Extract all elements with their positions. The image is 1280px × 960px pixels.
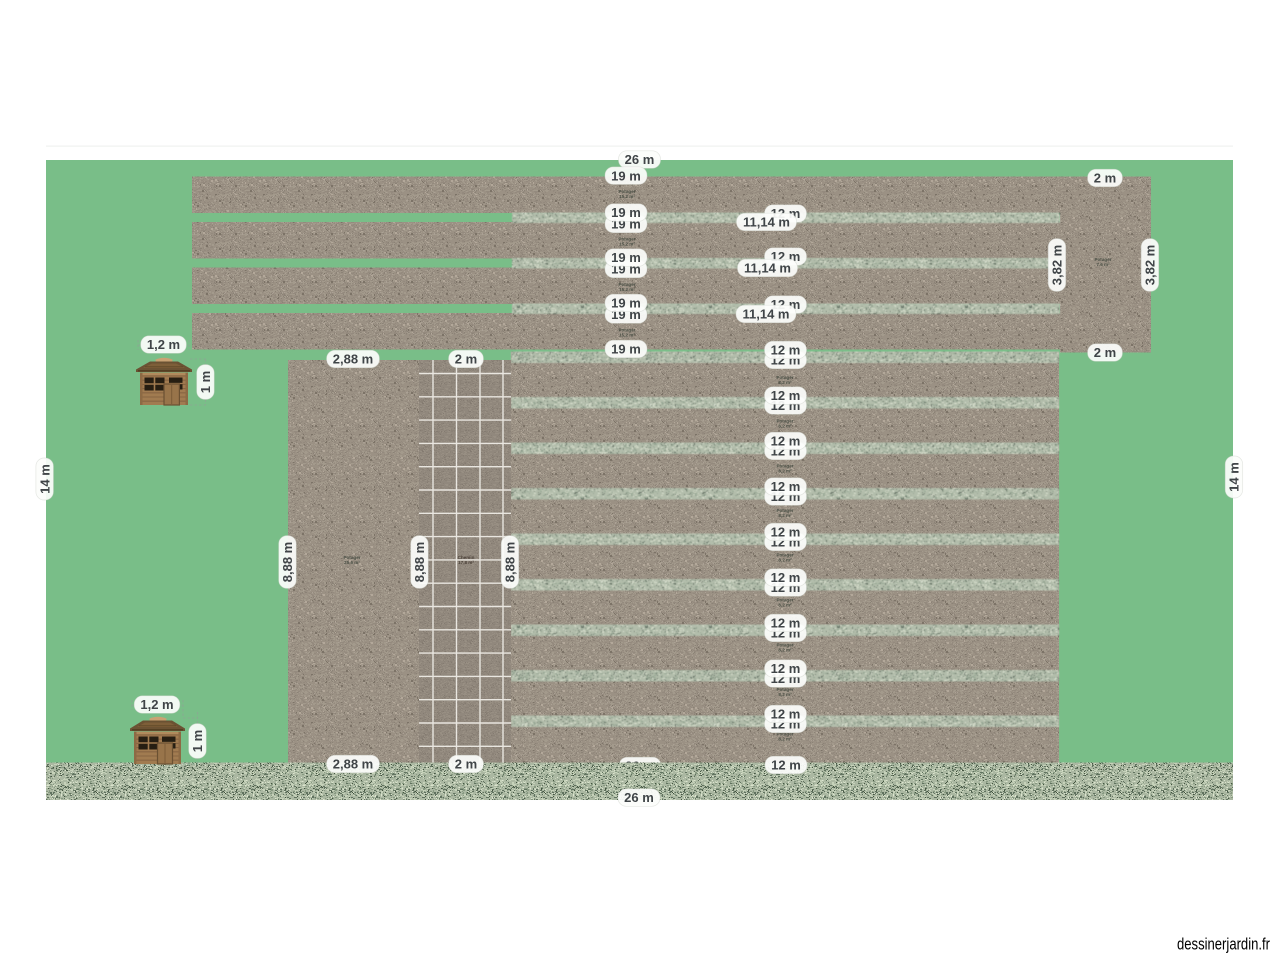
svg-text:2,88 m: 2,88 m	[333, 757, 373, 772]
svg-text:19 m: 19 m	[611, 296, 641, 311]
svg-text:12 m: 12 m	[771, 434, 801, 449]
svg-text:Potager8,2 m²: Potager8,2 m²	[776, 419, 793, 429]
svg-text:12 m: 12 m	[771, 388, 801, 403]
svg-text:11,14 m: 11,14 m	[744, 261, 791, 276]
svg-text:11,14 m: 11,14 m	[743, 215, 790, 230]
svg-text:19 m: 19 m	[611, 342, 641, 357]
svg-text:19 m: 19 m	[611, 250, 641, 265]
svg-text:Potager15,2 m²: Potager15,2 m²	[618, 237, 635, 247]
svg-text:12 m: 12 m	[771, 570, 801, 585]
svg-text:12 m: 12 m	[771, 479, 801, 494]
svg-text:12 m: 12 m	[771, 616, 801, 631]
svg-text:Potager8,2 m²: Potager8,2 m²	[776, 598, 793, 608]
svg-text:Potager8,2 m²: Potager8,2 m²	[776, 553, 793, 563]
svg-text:2 m: 2 m	[1094, 171, 1116, 186]
svg-text:Potager8,2 m²: Potager8,2 m²	[776, 464, 793, 474]
svg-text:8,88 m: 8,88 m	[412, 542, 427, 582]
svg-text:1 m: 1 m	[190, 730, 205, 752]
svg-text:Potager8,2 m²: Potager8,2 m²	[776, 687, 793, 697]
svg-text:Potager15,2 m²: Potager15,2 m²	[618, 282, 635, 292]
svg-text:12 m: 12 m	[771, 758, 801, 773]
svg-text:2,88 m: 2,88 m	[333, 352, 373, 367]
svg-text:1,2 m: 1,2 m	[140, 697, 173, 712]
svg-text:3,82 m: 3,82 m	[1050, 245, 1065, 285]
svg-text:12 m: 12 m	[771, 525, 801, 540]
svg-text:2 m: 2 m	[1094, 345, 1116, 360]
svg-text:19 m: 19 m	[611, 168, 641, 183]
svg-text:12 m: 12 m	[771, 707, 801, 722]
svg-text:14 m: 14 m	[37, 464, 52, 494]
svg-text:12 m: 12 m	[771, 343, 801, 358]
svg-text:26 m: 26 m	[624, 790, 654, 805]
svg-text:Potager8,2 m²: Potager8,2 m²	[776, 508, 793, 518]
svg-text:Potager8,2 m²: Potager8,2 m²	[776, 375, 793, 385]
svg-text:3,82 m: 3,82 m	[1143, 245, 1158, 285]
svg-text:Potager15,2 m²: Potager15,2 m²	[618, 189, 635, 199]
svg-text:8,88 m: 8,88 m	[280, 542, 295, 582]
svg-text:8,88 m: 8,88 m	[503, 542, 518, 582]
svg-text:26 m: 26 m	[625, 152, 655, 167]
svg-text:Chemin17,8 m²: Chemin17,8 m²	[458, 555, 475, 565]
svg-text:11,14 m: 11,14 m	[743, 307, 790, 322]
svg-text:2 m: 2 m	[455, 352, 477, 367]
svg-text:1,2 m: 1,2 m	[147, 337, 180, 352]
svg-text:12 m: 12 m	[771, 661, 801, 676]
svg-text:Potager7,6 m²: Potager7,6 m²	[1094, 257, 1111, 267]
svg-text:Potager8,2 m²: Potager8,2 m²	[776, 643, 793, 653]
svg-text:Potager25,6 m²: Potager25,6 m²	[343, 555, 360, 565]
svg-text:dessinerjardin.fr: dessinerjardin.fr	[1177, 936, 1270, 954]
svg-text:Potager15,2 m²: Potager15,2 m²	[618, 328, 635, 338]
svg-text:14 m: 14 m	[1227, 462, 1242, 492]
svg-text:19 m: 19 m	[611, 205, 641, 220]
svg-text:1 m: 1 m	[198, 371, 213, 393]
svg-text:2 m: 2 m	[455, 757, 477, 772]
